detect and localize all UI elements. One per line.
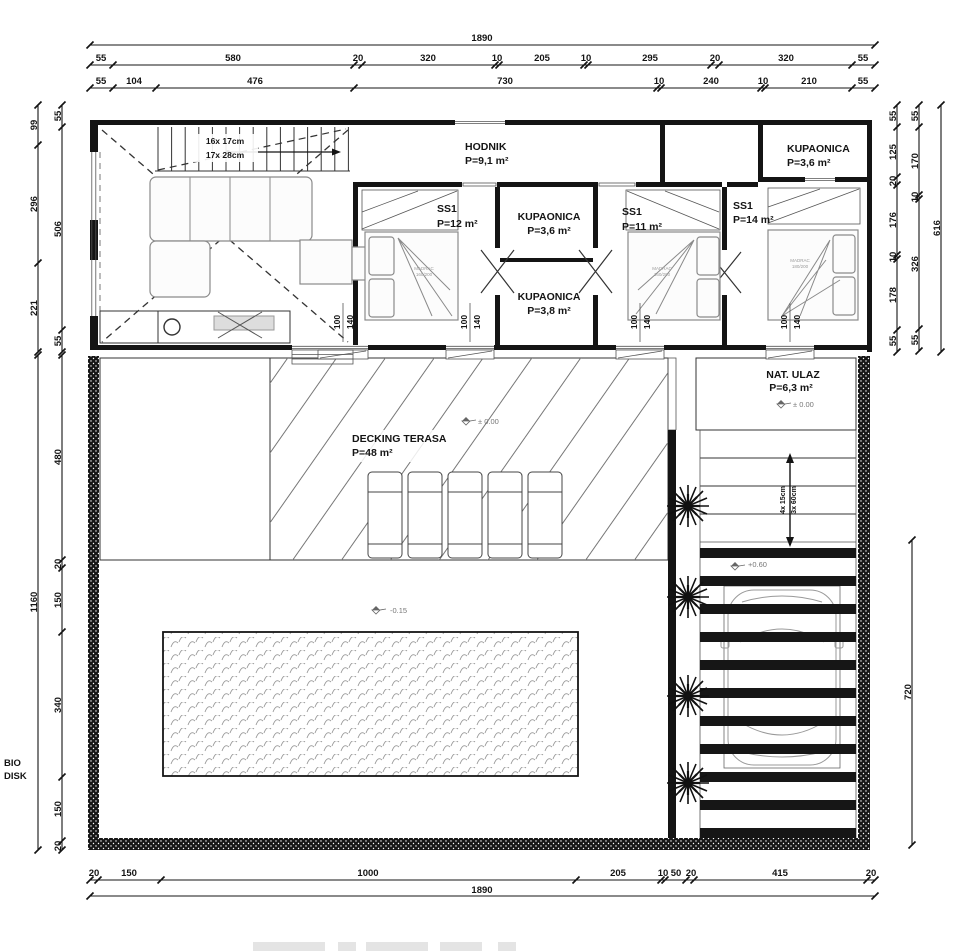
room-label-hodnik: HODNIK: [465, 141, 507, 153]
dim-label: 150: [121, 868, 137, 879]
dim-label: 1890: [471, 885, 492, 896]
dim-label: 221: [29, 299, 40, 316]
room-area-ss1-12: P=12 m²: [437, 218, 478, 230]
dim-label: 10: [581, 53, 592, 64]
room-area-ss1-11: P=11 m²: [622, 221, 662, 233]
dim-label: 320: [778, 53, 794, 64]
yard: DECKING TERASA P=48 m² ± 0.00 NAT. ULAZ …: [88, 356, 870, 850]
svg-text:100: 100: [459, 315, 469, 329]
dim-label: 55: [96, 76, 107, 87]
dim-label: 55: [53, 110, 64, 121]
dim-label: 55: [910, 334, 921, 345]
dim-label: 20: [710, 53, 721, 64]
dim-label: 20: [53, 559, 64, 570]
dim-label: 476: [247, 76, 263, 87]
dim-label: 20: [53, 841, 64, 852]
dim-right-middle: [916, 102, 923, 355]
dim-label: 55: [888, 335, 899, 346]
cut-off-caption: [253, 942, 516, 951]
dim-label: 125: [888, 143, 899, 160]
dim-label: 415: [772, 868, 789, 879]
nat-ulaz-area: NAT. ULAZ P=6,3 m² ± 0.00: [696, 358, 856, 430]
dim-left-outer-top: [35, 102, 42, 356]
sun-loungers: [368, 472, 562, 558]
dim-label: 210: [801, 76, 817, 87]
bed-label: MADRAC: [652, 266, 672, 271]
room-label-ss1-12: SS1: [437, 203, 457, 215]
dim-label: 730: [497, 76, 513, 87]
dim-label: 340: [53, 697, 64, 713]
bio-disk-label: BIO: [4, 758, 21, 769]
dim-label: 10: [888, 252, 899, 263]
dim-label: 1160: [29, 592, 40, 613]
bed-label: 160/200: [416, 272, 433, 277]
room-label-ss1-11: SS1: [622, 206, 642, 218]
room-area-kupaonica-36: P=3,6 m²: [527, 225, 571, 237]
yard-wall-left: [88, 356, 99, 850]
dim-label: 580: [225, 53, 241, 64]
level-marker-icon: [731, 562, 745, 570]
svg-text:140: 140: [345, 315, 355, 329]
stairs-note-2: 17x 28cm: [206, 150, 245, 160]
svg-text:100: 100: [779, 315, 789, 329]
level-deck: ± 0.00: [478, 417, 499, 426]
room-area-kupaonica-38: P=3,8 m²: [527, 305, 571, 317]
dim-top-row2: [87, 62, 879, 69]
bed-label: 180/200: [792, 264, 809, 269]
bed-label: MADRAC: [790, 258, 810, 263]
room-label-kupaonica-top: KUPAONICA: [787, 143, 850, 155]
svg-text:100: 100: [332, 315, 342, 329]
dim-label: 295: [642, 53, 659, 64]
bed-label: 160/200: [654, 272, 671, 277]
gravel-area: [100, 358, 270, 560]
outdoor-steps-note-2: 3x 60cm: [791, 486, 798, 514]
dim-label: 170: [910, 153, 921, 169]
room-area-hodnik: P=9,1 m²: [465, 155, 509, 167]
room-area-ss1-14: P=14 m²: [733, 214, 774, 226]
dim-label: 205: [610, 868, 627, 879]
bio-disk-label: DISK: [4, 771, 27, 782]
dim-label: 616: [932, 220, 943, 236]
dim-label: 55: [858, 76, 869, 87]
entry-side-wall: [668, 358, 676, 430]
room-area-nat-ulaz: P=6,3 m²: [769, 382, 813, 394]
level-marker-icon: [777, 400, 791, 408]
room-label-nat-ulaz: NAT. ULAZ: [766, 369, 820, 381]
bed-ss1-12: MADRAC 160/200: [365, 232, 458, 320]
room-label-kupaonica-38: KUPAONICA: [518, 291, 581, 303]
dim-label: 10: [758, 76, 769, 87]
dim-label: 10: [910, 192, 921, 203]
svg-text:140: 140: [472, 315, 482, 329]
dim-label: 720: [903, 684, 914, 700]
dim-label: 150: [53, 592, 64, 608]
dim-label: 50: [671, 868, 682, 879]
dim-label: 240: [703, 76, 719, 87]
dim-label: 1890: [471, 33, 492, 44]
svg-text:140: 140: [642, 315, 652, 329]
level-marker-icon: [372, 606, 386, 614]
dim-label: 205: [534, 53, 551, 64]
pool: -0.15: [163, 606, 578, 776]
bed-ss1-14: MADRAC 180/200: [768, 230, 858, 320]
dim-label: 55: [53, 335, 64, 346]
room-area-decking: P=48 m²: [352, 447, 393, 459]
dim-label: 176: [888, 212, 899, 228]
room-label-kupaonica-36: KUPAONICA: [518, 211, 581, 223]
room-label-ss1-14: SS1: [733, 200, 753, 212]
room-area-kupaonica-top: P=3,6 m²: [787, 157, 831, 169]
carport: +0.60: [700, 430, 856, 838]
dim-label: 20: [888, 176, 899, 187]
level-pool: -0.15: [390, 606, 407, 615]
dim-label: 99: [29, 120, 40, 131]
dim-label: 10: [492, 53, 503, 64]
dim-label: 20: [866, 868, 877, 879]
room-label-decking: DECKING TERASA: [352, 433, 447, 445]
dim-label: 320: [420, 53, 436, 64]
dim-label: 480: [53, 449, 64, 465]
dim-label: 55: [888, 110, 899, 121]
car: [721, 590, 843, 765]
bed-ss1-11: MADRAC 160/200: [628, 232, 720, 320]
dim-label: 326: [910, 256, 921, 272]
floor-plan-drawing: DECKING TERASA P=48 m² ± 0.00 NAT. ULAZ …: [0, 0, 960, 951]
svg-text:140: 140: [792, 315, 802, 329]
dim-label: 506: [53, 221, 64, 237]
level-entrance: ± 0.00: [793, 400, 814, 409]
dim-label: 178: [888, 287, 899, 303]
dim-label: 296: [29, 196, 40, 212]
dim-label: 150: [53, 801, 64, 817]
dim-bottom-row: [87, 877, 879, 884]
level-carport: +0.60: [748, 560, 767, 569]
dim-label: 10: [654, 76, 665, 87]
dim-label: 10: [658, 868, 669, 879]
pergola-beams: [700, 548, 856, 838]
dim-label: 55: [910, 110, 921, 121]
dim-label: 20: [89, 868, 100, 879]
bed-label: MADRAC: [414, 266, 434, 271]
dim-label: 55: [96, 53, 107, 64]
decking-terrace: DECKING TERASA P=48 m² ± 0.00: [270, 358, 668, 560]
dim-label: 20: [686, 868, 697, 879]
dim-label: 104: [126, 76, 143, 87]
dim-label: 1000: [357, 868, 378, 879]
house: 16x 17cm 17x 28cm: [90, 120, 872, 364]
hodnik-window: [455, 120, 505, 125]
svg-text:100: 100: [629, 315, 639, 329]
outdoor-steps: 4x 15cm 3x 60cm: [700, 430, 856, 547]
dim-label: 55: [858, 53, 869, 64]
stairs-note-1: 16x 17cm: [206, 136, 245, 146]
outdoor-steps-note-1: 4x 15cm: [780, 486, 787, 514]
yard-wall-right: [858, 356, 870, 850]
dim-label: 20: [353, 53, 364, 64]
yard-wall-bottom: [88, 838, 870, 850]
